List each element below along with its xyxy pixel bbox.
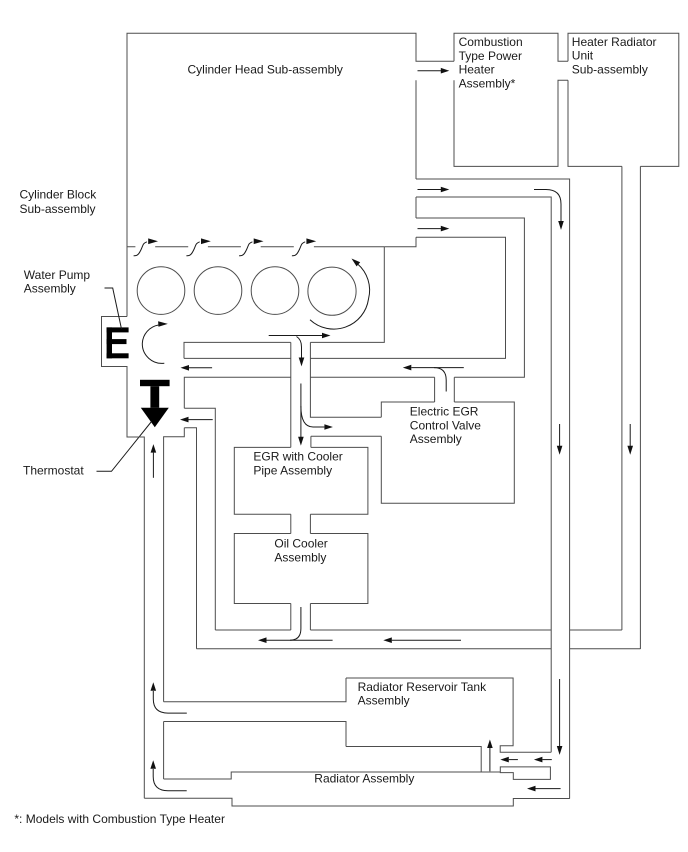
svg-text:Heater: Heater	[459, 63, 495, 77]
svg-text:Thermostat: Thermostat	[23, 463, 84, 477]
svg-text:Cylinder Head Sub-assembly: Cylinder Head Sub-assembly	[188, 63, 343, 77]
svg-text:Water Pump: Water Pump	[24, 268, 91, 282]
svg-text:Assembly*: Assembly*	[459, 76, 516, 90]
svg-text:Sub-assembly: Sub-assembly	[572, 62, 648, 76]
svg-text:*: Models with Combustion Type: *: Models with Combustion Type Heater	[14, 812, 225, 826]
svg-text:Type Power: Type Power	[459, 49, 522, 63]
svg-text:Control Valve: Control Valve	[410, 418, 481, 432]
svg-text:Cylinder Block: Cylinder Block	[20, 187, 98, 201]
svg-text:Assembly: Assembly	[410, 432, 462, 446]
svg-text:Sub-assembly: Sub-assembly	[20, 202, 96, 216]
svg-text:Assembly: Assembly	[24, 282, 76, 296]
svg-text:Assembly: Assembly	[358, 694, 410, 708]
svg-text:Radiator Assembly: Radiator Assembly	[314, 772, 414, 786]
svg-text:Combustion: Combustion	[459, 35, 523, 49]
svg-text:Oil Cooler: Oil Cooler	[274, 537, 327, 551]
svg-text:Electric EGR: Electric EGR	[410, 405, 479, 419]
svg-text:Heater Radiator: Heater Radiator	[572, 35, 657, 49]
svg-text:EGR with Cooler: EGR with Cooler	[253, 450, 342, 464]
svg-text:Assembly: Assembly	[274, 550, 326, 564]
svg-text:Radiator Reservoir Tank: Radiator Reservoir Tank	[358, 680, 488, 694]
svg-text:Unit: Unit	[572, 49, 594, 63]
svg-text:Pipe Assembly: Pipe Assembly	[253, 463, 332, 477]
